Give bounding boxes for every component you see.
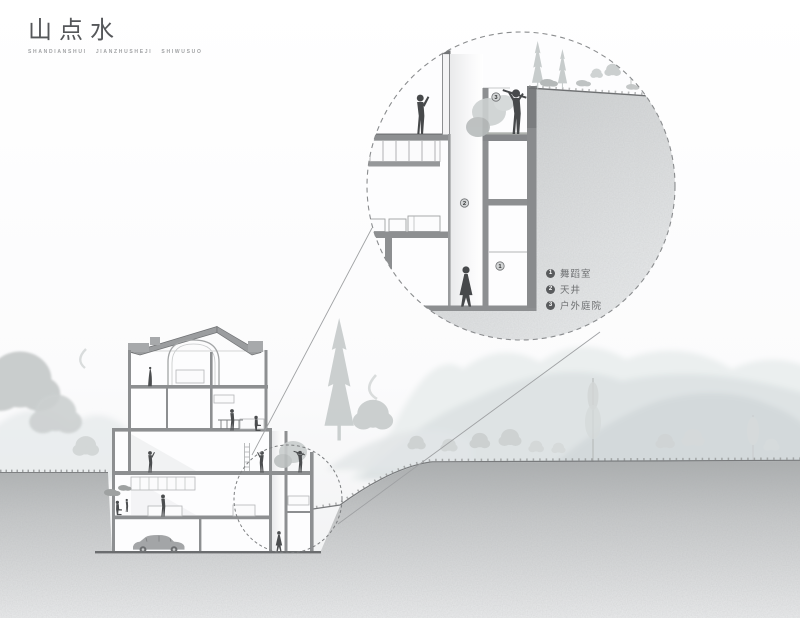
callout-atrium: 2 — [460, 199, 468, 207]
legend-item: 1 舞蹈室 — [546, 266, 602, 280]
legend-label: 户外庭院 — [560, 298, 602, 312]
architecture-poster: 3 2 1 山点水 SHANDIANSHUI JIANZHUSHEJI SHIW… — [0, 0, 800, 618]
legend-label: 天井 — [560, 282, 581, 296]
legend-number-badge: 3 — [546, 301, 555, 310]
brand-caption: SHANDIANSHUI JIANZHUSHEJI SHIWUSUO — [28, 49, 203, 55]
legend-number-badge: 1 — [546, 269, 555, 278]
brand-title: 山点水 — [28, 10, 203, 45]
legend-item: 3 户外庭院 — [546, 298, 602, 312]
legend-item: 2 天井 — [546, 282, 602, 296]
callout-outdoor-court: 3 — [492, 93, 500, 101]
legend: 1 舞蹈室 2 天井 3 户外庭院 — [546, 266, 602, 314]
legend-number-badge: 2 — [546, 285, 555, 294]
brand-block: 山点水 SHANDIANSHUI JIANZHUSHEJI SHIWUSUO — [28, 10, 203, 55]
legend-label: 舞蹈室 — [560, 266, 592, 280]
section-illustration: 3 2 1 — [0, 0, 800, 618]
callout-dance-room: 1 — [496, 262, 504, 270]
svg-text:2: 2 — [463, 201, 466, 207]
